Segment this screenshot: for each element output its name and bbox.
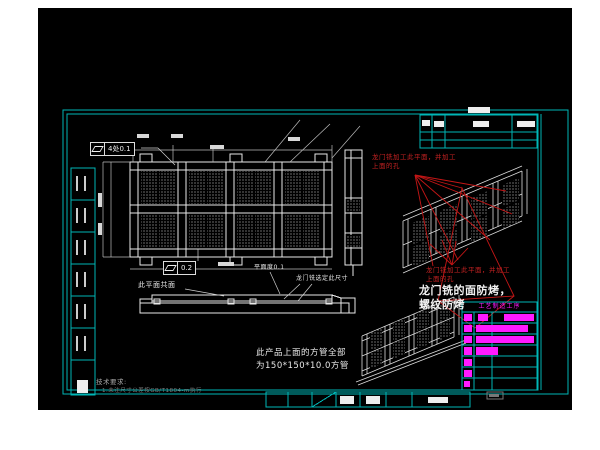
red-note-top-line1: 龙门铣加工此平面，并加工 <box>372 154 456 161</box>
bake-note-line1: 龙门铣的面防烤， <box>419 285 511 296</box>
flatness-icon <box>91 143 105 155</box>
tube-note-line2: 为150*150*10.0方管 <box>256 362 349 371</box>
iso-view-top <box>403 166 527 273</box>
process-table-title: 工艺制造工序 <box>462 304 537 310</box>
flatness-icon <box>164 262 178 274</box>
cad-drawing-canvas[interactable]: 4处0.1 0.2 此平面共面 平面度0.1 龙门铣选定此尺寸 此产品上面的方管… <box>38 8 572 410</box>
gantry-size-label: 龙门铣选定此尺寸 <box>296 276 348 282</box>
revision-table <box>420 107 537 148</box>
red-note-mid-line2: 上面的孔 <box>426 276 454 283</box>
tech-requirements-title: 技术要求: <box>96 379 127 386</box>
gdt-frame-front: 0.2 <box>163 261 196 275</box>
tube-note-line1: 此产品上面的方管全部 <box>256 349 346 358</box>
plan-view <box>130 154 332 265</box>
gdt-front-value: 0.2 <box>178 264 195 272</box>
gdt-top-value: 4处0.1 <box>105 144 134 154</box>
flatness-label: 平面度0.1 <box>254 265 285 271</box>
side-section-view <box>345 150 362 276</box>
red-note-top-line2: 上面的孔 <box>372 163 400 170</box>
process-table <box>462 302 537 390</box>
cad-window: 4处0.1 0.2 此平面共面 平面度0.1 龙门铣选定此尺寸 此产品上面的方管… <box>0 0 600 450</box>
red-note-mid-line1: 龙门铣加工此平面，并加工 <box>426 267 510 274</box>
parts-list-strip <box>71 168 95 395</box>
bake-note-line2: 螺纹防烤 <box>419 299 465 310</box>
tech-requirements-item: 1.未注尺寸公差按GB/T1804-m执行 <box>102 389 202 395</box>
coplanar-label: 此平面共面 <box>138 282 176 289</box>
front-elevation-view <box>140 295 355 313</box>
gdt-frame-top: 4处0.1 <box>90 142 135 156</box>
plan-dimensions <box>98 120 360 269</box>
